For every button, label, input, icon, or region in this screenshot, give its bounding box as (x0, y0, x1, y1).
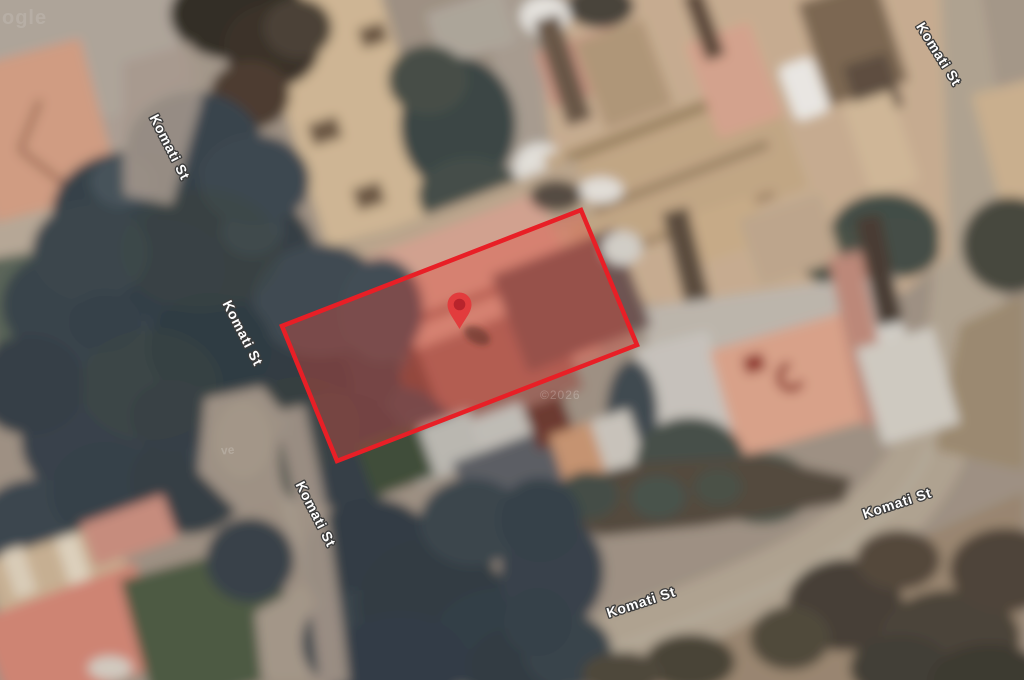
svg-text:ve: ve (221, 443, 236, 458)
svg-text:©2026: ©2026 (540, 388, 581, 402)
svg-text:ogle: ogle (2, 7, 47, 29)
